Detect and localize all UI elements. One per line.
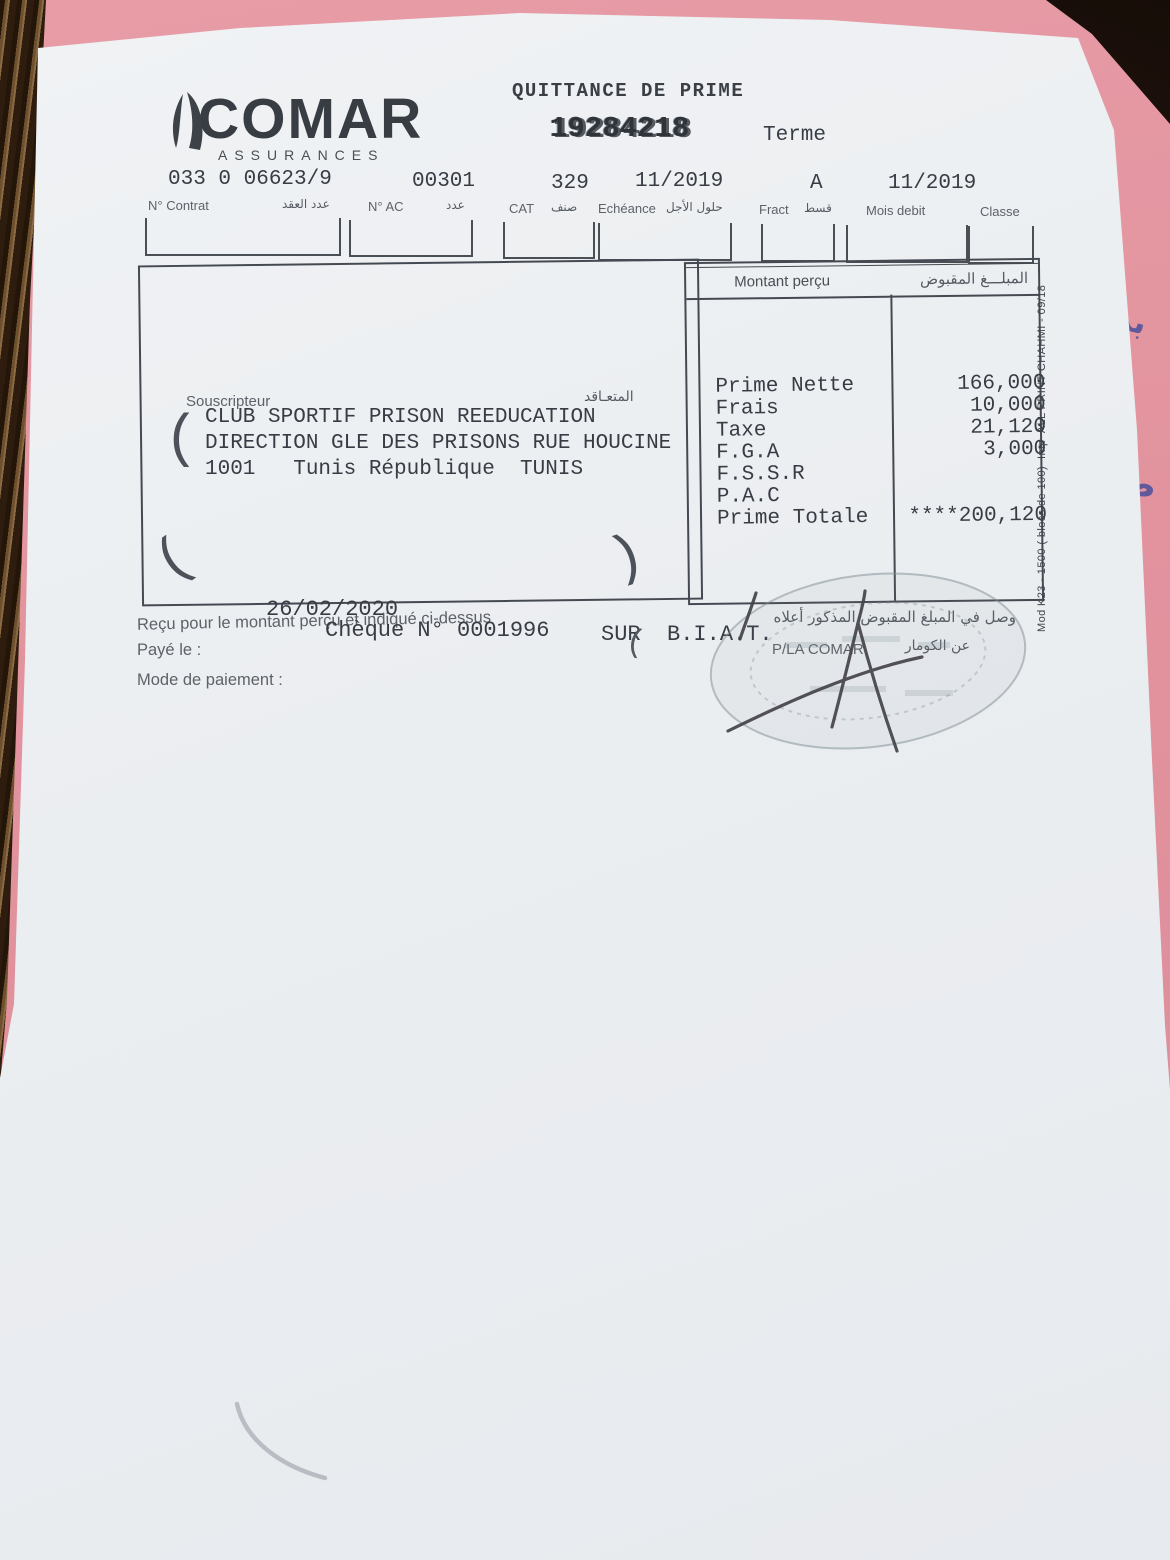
mois-debit-bracket	[846, 225, 968, 263]
fract-label: Fract	[759, 202, 789, 217]
photo-of-insurance-receipt: { "brand": { "name": "COMAR", "subtitle"…	[0, 0, 1170, 1560]
document-title: QUITTANCE DE PRIME	[512, 80, 744, 102]
cheque-number-typed: Chèque N° 0001996	[325, 618, 549, 643]
echeance-bracket	[598, 223, 732, 261]
echeance-label: Echéance	[598, 201, 656, 216]
receipt-number: 19284218	[550, 112, 689, 145]
term-label: Terme	[763, 124, 826, 147]
pen-curve-mark	[225, 1390, 345, 1490]
cat-bracket	[503, 222, 595, 259]
amount-header-band: Montant perçu المبلـــغ المقبوض	[686, 263, 1038, 300]
mode-paiement-label: Mode de paiement :	[137, 671, 283, 690]
subscriber-line-2: DIRECTION GLE DES PRISONS RUE HOUCINE	[205, 432, 671, 455]
amount-row-value: ****200,120	[908, 504, 1047, 529]
echeance-label-ar: حلول الأجل	[666, 200, 723, 214]
amount-header-label-ar: المبلـــغ المقبوض	[920, 269, 1028, 288]
amount-row-label: F.G.A	[716, 441, 779, 465]
subscriber-label-ar: المتعـاقد	[584, 389, 634, 405]
ac-number-label-ar: عدد	[446, 198, 465, 212]
mois-debit-label: Mois debit	[866, 203, 925, 218]
ac-number-value: 00301	[412, 170, 475, 193]
mois-debit-value: 11/2019	[888, 172, 976, 195]
contract-number-label-ar: عدد العقد	[282, 197, 330, 211]
contract-number-value: 033 0 06623/9	[168, 168, 332, 191]
amount-header-label: Montant perçu	[734, 272, 830, 290]
subscriber-line-3: 1001 Tunis République TUNIS	[205, 458, 583, 481]
contract-number-label: N° Contrat	[148, 198, 209, 213]
window-mark-left-paren: (	[164, 408, 199, 473]
ac-number-bracket	[349, 220, 473, 257]
amount-row-label: Frais	[716, 397, 779, 421]
amount-row-label: P.A.C	[717, 485, 780, 509]
cat-value: 329	[551, 172, 589, 195]
amount-row-value: 166,000	[957, 372, 1045, 396]
amount-row-value: 10,000	[970, 394, 1046, 418]
subscriber-line-1: CLUB SPORTIF PRISON REEDUCATION	[205, 406, 596, 429]
fract-bracket	[761, 224, 835, 262]
amount-row-value: 21,120	[970, 416, 1046, 440]
amount-row-label: Taxe	[716, 419, 767, 443]
fract-value: A	[810, 172, 823, 195]
ac-number-label: N° AC	[368, 199, 404, 214]
classe-label: Classe	[980, 204, 1020, 219]
company-stamp-and-signature	[690, 553, 1055, 768]
contract-number-bracket	[145, 218, 341, 256]
receipt-paper: COMAR ASSURANCES QUITTANCE DE PRIME 1928…	[0, 0, 1170, 1560]
cat-label: CAT	[509, 201, 534, 216]
fract-label-ar: قسط	[804, 201, 832, 215]
cat-label-ar: صنف	[551, 200, 577, 214]
echeance-value: 11/2019	[635, 170, 723, 193]
paye-le-label: Payé le :	[137, 641, 201, 660]
brand-subtitle: ASSURANCES	[218, 147, 384, 163]
amount-row-label: F.S.S.R	[716, 463, 804, 487]
amount-row-label: Prime Nette	[715, 374, 854, 399]
brand-name: COMAR	[198, 86, 423, 152]
amount-row-label: Prime Totale	[717, 506, 869, 531]
